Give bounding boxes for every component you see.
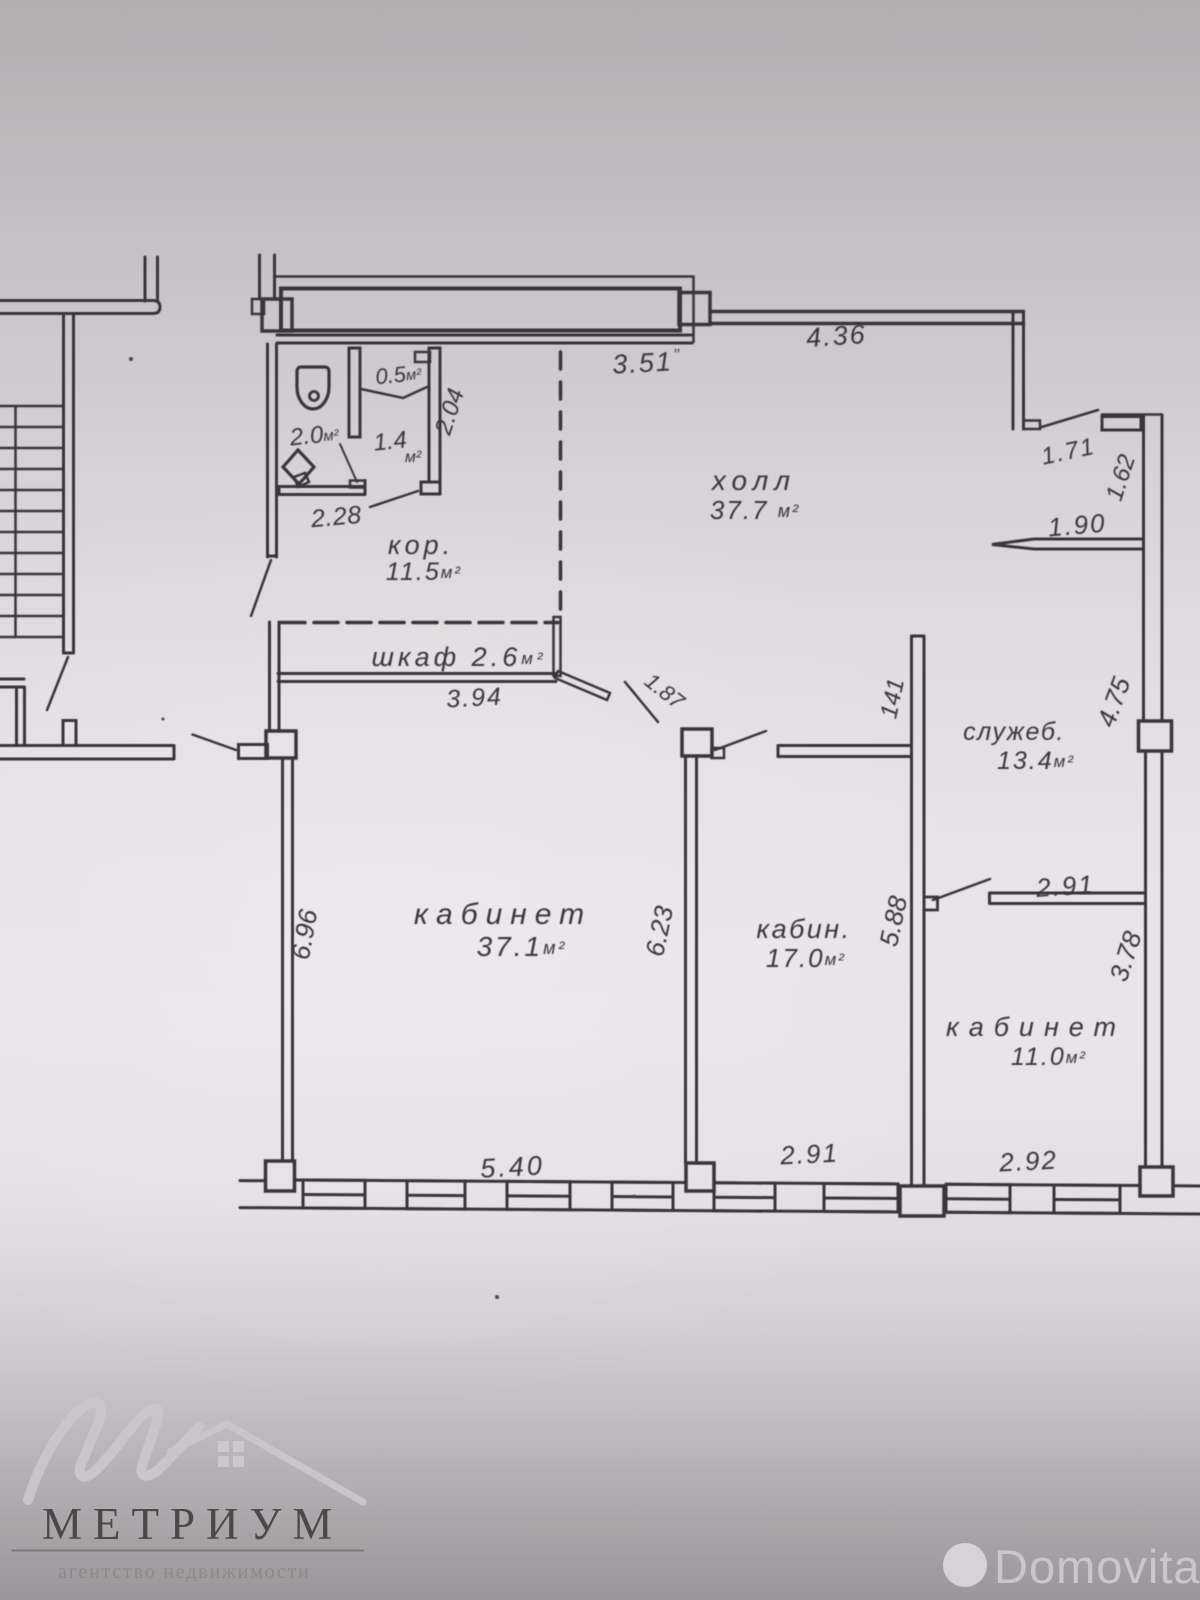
svg-text:11.5м²: 11.5м² [386, 558, 462, 586]
svg-text:МЕТРИУМ: МЕТРИУМ [42, 1499, 343, 1549]
svg-text:2.92: 2.92 [997, 1144, 1058, 1177]
svg-text:1.62: 1.62 [1101, 451, 1141, 504]
svg-text:Domovita: Domovita [994, 1540, 1200, 1593]
svg-text:2.28: 2.28 [309, 501, 363, 533]
svg-text:кор.: кор. [388, 530, 454, 560]
svg-text:2.04: 2.04 [430, 385, 470, 439]
svg-text:5.88: 5.88 [873, 893, 913, 949]
svg-text:2.91: 2.91 [1034, 869, 1096, 903]
svg-text:1.71: 1.71 [1039, 433, 1098, 471]
svg-text:служеб.: служеб. [963, 718, 1065, 746]
svg-text:11.0м²: 11.0м² [1011, 1043, 1087, 1071]
svg-text:3.51: 3.51 [612, 346, 674, 379]
svg-text:3.78: 3.78 [1103, 927, 1147, 985]
svg-text:141: 141 [875, 676, 910, 721]
svg-text:4.75: 4.75 [1091, 673, 1137, 731]
svg-text:кабин.: кабин. [756, 914, 851, 944]
svg-text:2.91: 2.91 [778, 1137, 839, 1170]
svg-text:0.5м²: 0.5м² [374, 360, 423, 390]
svg-text:холл: холл [710, 465, 796, 496]
svg-text:13.4м²: 13.4м² [997, 747, 1075, 775]
svg-text:1.4: 1.4 [372, 426, 408, 456]
svg-text:1.90: 1.90 [1047, 508, 1108, 543]
svg-text:кабинет: кабинет [946, 1012, 1126, 1042]
svg-text:6.96: 6.96 [285, 906, 323, 962]
svg-text:агентство недвижимости: агентство недвижимости [58, 1561, 311, 1583]
svg-text:4.36: 4.36 [805, 319, 868, 353]
svg-text:2.0м²: 2.0м² [288, 419, 341, 451]
svg-text:37.1м²: 37.1м² [477, 931, 568, 962]
svg-text:м²: м² [405, 449, 422, 466]
svg-text:5.40: 5.40 [480, 1150, 546, 1183]
svg-text:3.94: 3.94 [446, 683, 504, 714]
svg-text:37.7 м²: 37.7 м² [710, 495, 800, 525]
svg-text:кабинет: кабинет [414, 898, 592, 931]
svg-text:’’: ’’ [673, 347, 680, 364]
svg-text:шкаф 2.6м²: шкаф 2.6м² [371, 642, 546, 672]
svg-text:17.0м²: 17.0м² [766, 943, 846, 973]
svg-text:6.23: 6.23 [639, 903, 679, 959]
